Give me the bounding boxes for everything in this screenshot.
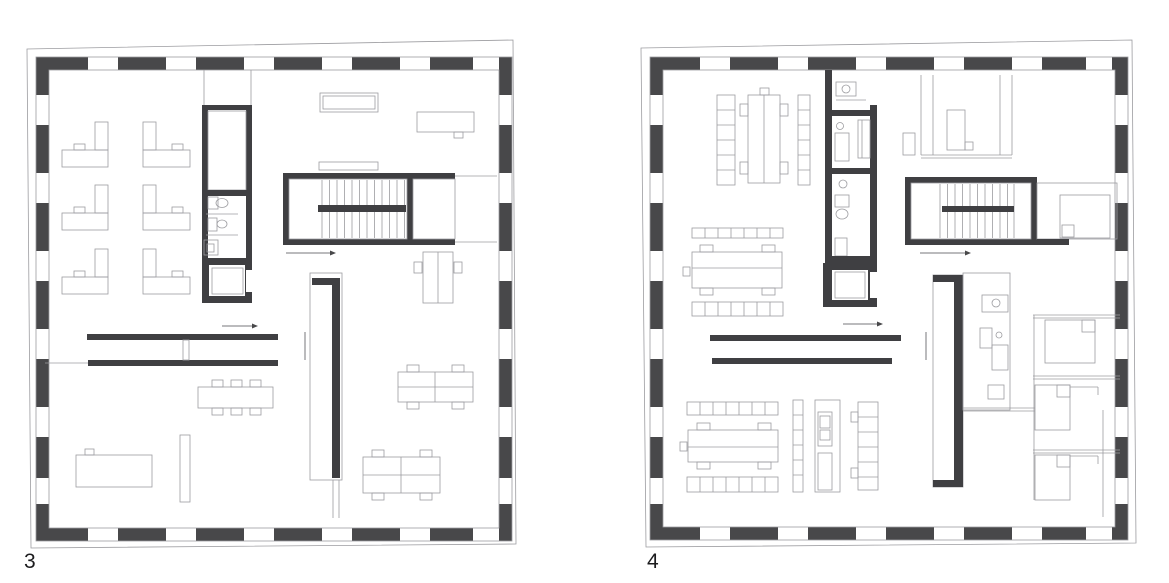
desk-chair [85, 449, 94, 455]
bench [180, 435, 190, 502]
chair [762, 288, 775, 295]
chair [372, 450, 384, 457]
chair [758, 462, 771, 469]
fixture [980, 328, 992, 348]
partition-line [1033, 315, 1120, 318]
bedrooms [1033, 315, 1120, 517]
cabinet-inner [207, 244, 214, 252]
chair [372, 493, 384, 500]
floor-plan-3 [0, 0, 585, 583]
shelf-row [692, 302, 783, 316]
wall-shelf [319, 162, 378, 170]
stair-landing-rail [942, 206, 1014, 212]
worktable-bottom-group [680, 400, 878, 492]
perimeter-wall [649, 56, 1129, 541]
desk-chair [172, 271, 183, 277]
sink-basin [992, 299, 1000, 307]
chair [420, 450, 432, 457]
arrowhead [330, 251, 336, 256]
sideboard [320, 93, 378, 112]
wc-1 [836, 82, 866, 100]
chair [212, 380, 223, 387]
chair [212, 408, 223, 415]
counter [982, 295, 1008, 312]
wc-2 [835, 120, 870, 161]
chair [683, 267, 690, 276]
double-partition-walls [45, 324, 305, 367]
desk-chair [74, 271, 85, 277]
shelf-row [687, 402, 778, 415]
core-room [208, 111, 246, 190]
wall-inner-face [49, 70, 499, 528]
arrowhead [965, 251, 971, 256]
cabinet [835, 238, 847, 256]
desk-chair [172, 207, 183, 213]
chair [452, 402, 464, 409]
sanitary-core [823, 70, 877, 307]
pillow [1057, 385, 1070, 397]
l-desk [143, 122, 190, 167]
wc [204, 197, 238, 255]
elevator-door [246, 270, 252, 292]
perimeter-wall [35, 56, 513, 542]
plan-label-4: 4 [647, 551, 659, 573]
fixture [992, 345, 1008, 370]
desk-chair [74, 207, 85, 213]
chair [851, 412, 858, 422]
floor-plan-4 [585, 0, 1169, 583]
chair [851, 468, 858, 478]
sink-basin [217, 220, 227, 228]
worktable-middle-group [683, 228, 783, 316]
shower [835, 133, 849, 161]
fixture [988, 385, 1004, 399]
chair [780, 162, 788, 174]
l-desk [143, 249, 190, 294]
sink [208, 218, 217, 231]
chair [740, 104, 748, 116]
arrowhead [252, 324, 258, 329]
toilet-tank [835, 195, 849, 207]
wardrobe-base [921, 155, 1012, 158]
chair [231, 380, 242, 387]
l-desk [143, 185, 190, 230]
partition-line [1033, 450, 1120, 453]
l-desk-grid [62, 122, 190, 294]
chair [697, 462, 710, 469]
desk-top-right [417, 112, 474, 138]
shelf-row [692, 228, 783, 238]
bed [1035, 455, 1098, 500]
elevator-door [870, 272, 877, 298]
wc-3 [835, 180, 849, 256]
desk-chair [454, 262, 462, 273]
pillow [1062, 225, 1074, 237]
team-desk-a [398, 365, 473, 409]
chair [697, 423, 710, 430]
chair [231, 408, 242, 415]
faucet [996, 332, 1002, 338]
elevator [202, 258, 252, 303]
chair [740, 162, 748, 174]
appliance-unit [815, 400, 840, 492]
tall-cabinet [947, 110, 965, 150]
worktable-horizontal [680, 423, 778, 469]
toilet-tank [208, 197, 218, 209]
arrowhead [877, 322, 883, 327]
wall-inner-face [663, 70, 1115, 527]
l-desk [62, 185, 108, 230]
shelf-strip [793, 400, 803, 492]
worktable-vertical [740, 88, 788, 183]
desk-below-stair [414, 252, 462, 303]
desk-bottom-left [76, 449, 152, 487]
chair [700, 245, 713, 252]
chair [760, 88, 769, 95]
double-partition-walls [710, 322, 926, 365]
floor-plan-sheet: 3 4 [0, 0, 1169, 583]
bed [1060, 195, 1110, 238]
worktable-horizontal [683, 245, 782, 295]
elevator [823, 263, 877, 307]
vestibule-opening-lines [455, 176, 497, 242]
wardrobe-lines [921, 75, 1012, 155]
partition-line [1033, 376, 1120, 379]
chair [407, 402, 419, 409]
chair [250, 408, 261, 415]
chair [407, 365, 419, 372]
pillow [1082, 320, 1095, 332]
bedroom-beside-stair [1037, 183, 1117, 245]
stairwell [905, 177, 1037, 256]
sink-basin [839, 180, 847, 188]
pillow [1057, 455, 1070, 467]
desk-chair [172, 144, 183, 150]
plan-label-3: 3 [24, 551, 36, 573]
cabinet-tab [965, 142, 973, 150]
chair [420, 493, 432, 500]
chair [250, 380, 261, 387]
desk-chair [414, 262, 422, 273]
corridor-lines [333, 480, 339, 518]
stairwell [283, 173, 497, 256]
desk-chair [454, 132, 463, 138]
chair [452, 365, 464, 372]
worktable-vertical-group [717, 88, 810, 185]
vertical-wall-channel [933, 275, 963, 487]
shelf-column [798, 95, 810, 185]
small-cabinet [903, 133, 915, 155]
team-desk-b [363, 450, 440, 500]
shelf-column [717, 95, 735, 185]
desk-chair [74, 144, 85, 150]
l-desk [62, 122, 108, 167]
faucet [837, 123, 844, 130]
shelf-row [687, 477, 778, 492]
corridor-lines [204, 70, 251, 105]
wardrobe-room [903, 75, 1012, 158]
shelf-strip [851, 402, 878, 490]
wall-outer-face [650, 57, 1128, 540]
kitchenette-unit [963, 273, 1035, 411]
bed [1035, 385, 1098, 430]
bed [1045, 320, 1095, 363]
conference-table [198, 380, 273, 415]
facade-outline [641, 40, 1136, 547]
partition-connector [183, 340, 189, 360]
stair-landing-rail [318, 205, 406, 212]
tall-cabinet [858, 120, 870, 158]
sink-basin [842, 85, 850, 93]
partition-line [963, 408, 1035, 411]
chair [680, 442, 687, 451]
service-core [202, 70, 252, 303]
chair [762, 245, 775, 252]
vertical-partition-wall [310, 273, 342, 518]
chair [780, 104, 788, 116]
l-desk [62, 249, 108, 294]
stair-vestibule [413, 179, 455, 239]
chair [700, 288, 713, 295]
toilet-bowl [836, 209, 848, 219]
chair [758, 423, 771, 430]
wall-outer-face [36, 57, 512, 541]
